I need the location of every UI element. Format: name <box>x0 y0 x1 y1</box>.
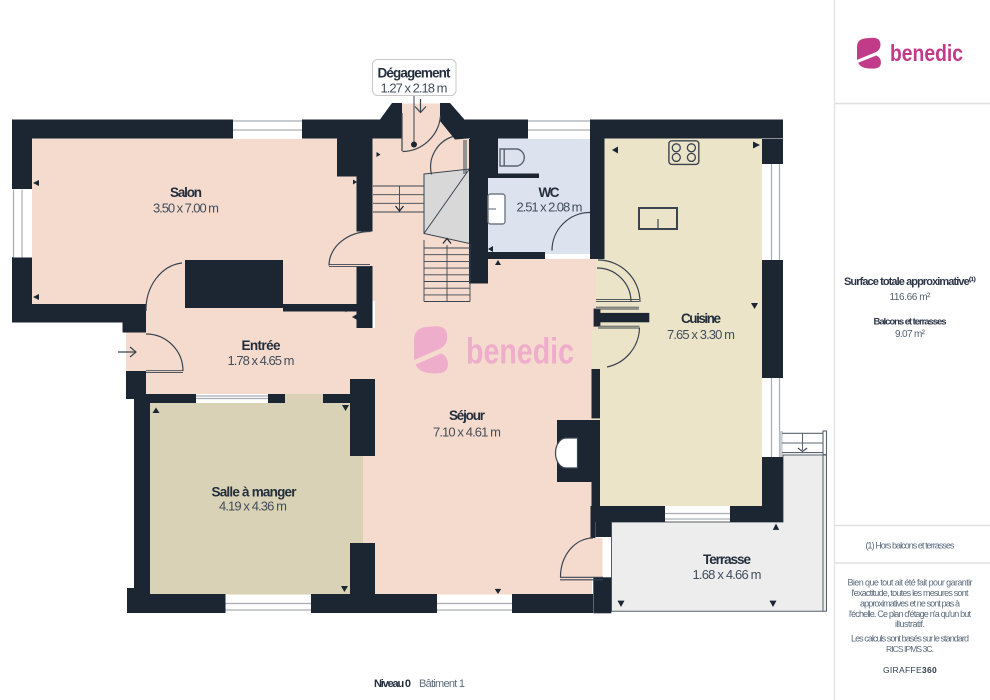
svg-text:7.10 x 4.61 m: 7.10 x 4.61 m <box>433 425 501 440</box>
svg-text:WC: WC <box>539 185 560 200</box>
svg-text:1.68 x 4.66 m: 1.68 x 4.66 m <box>693 567 762 582</box>
svg-text:l'échelle. Ce plan d'étage n'a: l'échelle. Ce plan d'étage n'a qu'un but <box>849 609 971 619</box>
svg-text:1.78 x 4.65 m: 1.78 x 4.65 m <box>228 353 295 368</box>
svg-text:Niveau 0: Niveau 0 <box>374 678 411 690</box>
svg-text:Les calculs sont basés sur le: Les calculs sont basés sur le standard <box>851 634 969 644</box>
svg-text:2.51 x 2.08 m: 2.51 x 2.08 m <box>517 200 583 215</box>
svg-text:Dégagement: Dégagement <box>378 66 452 81</box>
svg-text:illustratif.: illustratif. <box>895 619 925 629</box>
svg-text:(1) Hors balcons et terrasses: (1) Hors balcons et terrasses <box>866 541 956 551</box>
svg-text:116.66 m²: 116.66 m² <box>890 292 932 303</box>
svg-text:Balcons et terrasses: Balcons et terrasses <box>874 317 947 328</box>
svg-text:GIRAFFE360: GIRAFFE360 <box>883 665 937 675</box>
svg-text:7.65 x 3.30 m: 7.65 x 3.30 m <box>667 327 735 342</box>
svg-text:Cuisine: Cuisine <box>681 311 721 326</box>
svg-text:9.07 m²: 9.07 m² <box>895 329 926 340</box>
svg-text:Salon: Salon <box>170 185 202 200</box>
svg-text:3.50 x 7.00 m: 3.50 x 7.00 m <box>153 201 219 216</box>
svg-text:approximatives et ne sont pas: approximatives et ne sont pas à <box>860 599 960 609</box>
svg-text:Surface totale approximative⁽¹: Surface totale approximative⁽¹⁾ <box>844 276 976 288</box>
svg-text:RICS IPMS 3C.: RICS IPMS 3C. <box>886 644 934 654</box>
svg-text:1.27 x 2.18 m: 1.27 x 2.18 m <box>381 81 448 96</box>
svg-text:Salle à manger: Salle à manger <box>212 485 298 500</box>
svg-text:4.19 x 4.36 m: 4.19 x 4.36 m <box>219 499 287 514</box>
svg-text:Bâtiment 1: Bâtiment 1 <box>419 678 465 690</box>
svg-text:benedic: benedic <box>890 40 963 66</box>
svg-text:l'exactitude, toutes les mesur: l'exactitude, toutes les mesures sont <box>852 588 969 598</box>
svg-text:Entrée: Entrée <box>242 338 281 353</box>
svg-text:Séjour: Séjour <box>449 408 486 423</box>
svg-text:benedic: benedic <box>466 331 574 372</box>
svg-text:Terrasse: Terrasse <box>703 552 751 567</box>
svg-text:Bien que tout ait été fait pou: Bien que tout ait été fait pour garantir <box>848 578 973 588</box>
